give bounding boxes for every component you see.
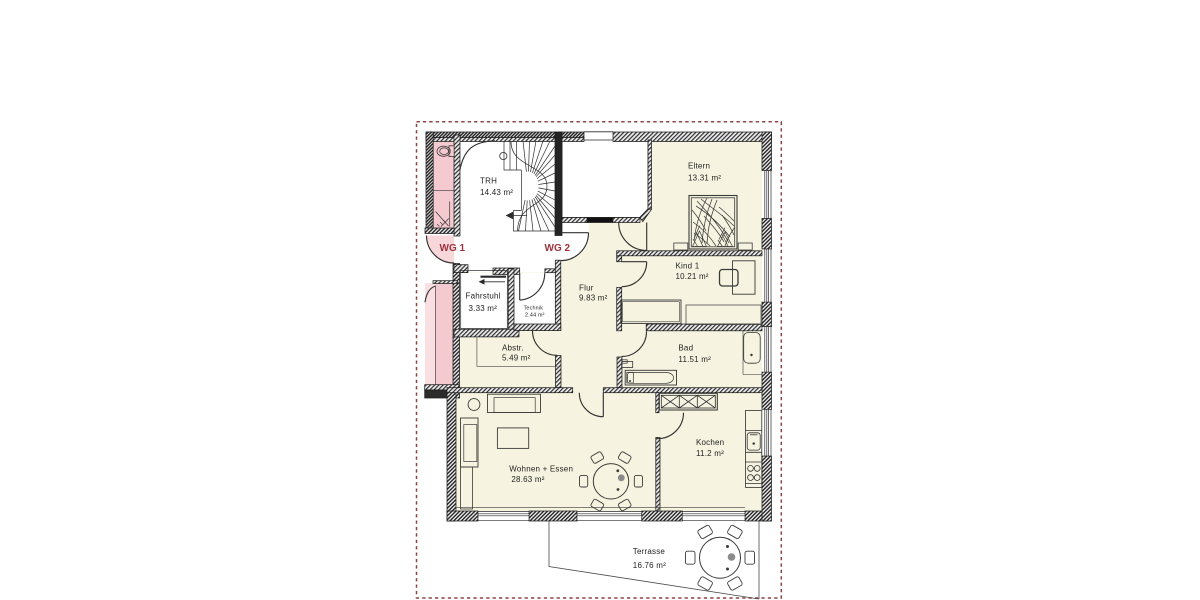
svg-text:Terrasse: Terrasse bbox=[633, 547, 666, 556]
svg-text:Kind 1: Kind 1 bbox=[676, 262, 700, 271]
svg-text:Fahrstuhl: Fahrstuhl bbox=[466, 292, 501, 301]
svg-text:WG 1: WG 1 bbox=[440, 243, 466, 254]
svg-text:WG 2: WG 2 bbox=[545, 243, 571, 254]
svg-text:Eltern: Eltern bbox=[688, 162, 710, 171]
svg-text:28.63 m²: 28.63 m² bbox=[511, 475, 544, 484]
svg-text:Wohnen + Essen: Wohnen + Essen bbox=[509, 465, 573, 474]
svg-text:Flur: Flur bbox=[579, 284, 594, 293]
svg-text:3.33 m²: 3.33 m² bbox=[469, 304, 498, 313]
svg-text:Bad: Bad bbox=[678, 344, 693, 353]
svg-text:14.43 m²: 14.43 m² bbox=[480, 188, 513, 197]
svg-text:11.2 m²: 11.2 m² bbox=[696, 449, 724, 458]
svg-text:9.83 m²: 9.83 m² bbox=[579, 294, 608, 303]
svg-text:10.21 m²: 10.21 m² bbox=[676, 272, 709, 281]
svg-text:Abstr.: Abstr. bbox=[502, 344, 524, 353]
svg-text:TRH: TRH bbox=[480, 177, 497, 186]
svg-text:13.31 m²: 13.31 m² bbox=[688, 174, 721, 183]
svg-text:2.44 m²: 2.44 m² bbox=[525, 313, 545, 319]
svg-text:11.51 m²: 11.51 m² bbox=[678, 355, 711, 364]
svg-text:Technik: Technik bbox=[524, 306, 544, 312]
svg-text:5.49 m²: 5.49 m² bbox=[502, 354, 531, 363]
svg-text:16.76 m²: 16.76 m² bbox=[633, 561, 666, 570]
svg-text:Kochen: Kochen bbox=[696, 438, 724, 447]
